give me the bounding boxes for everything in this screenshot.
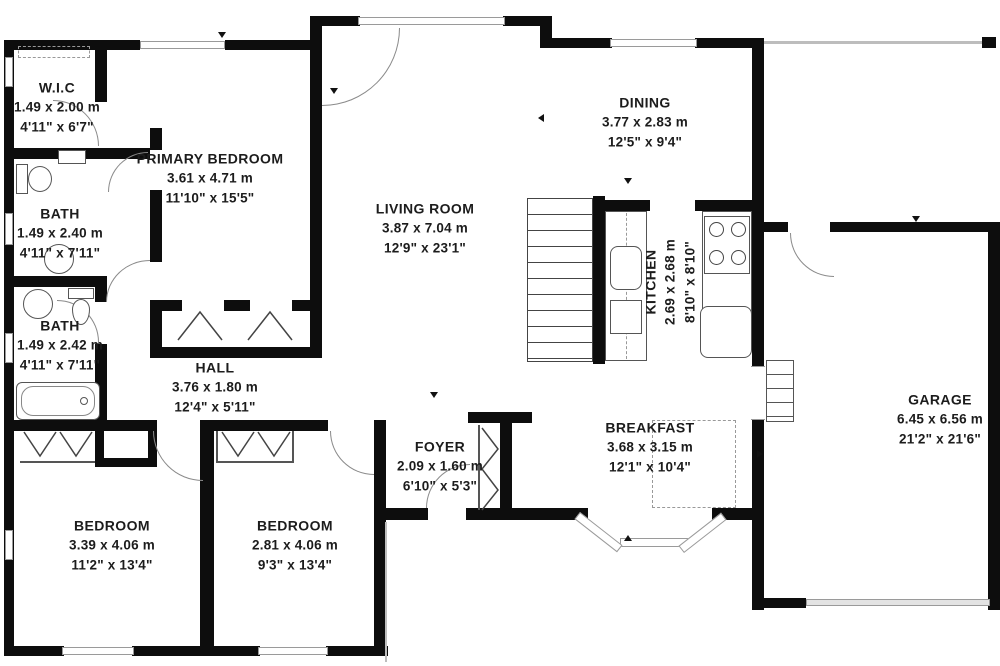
fence-post [982, 37, 996, 48]
door-tick [218, 32, 226, 42]
wall-segment [224, 300, 250, 311]
door-tick [624, 531, 632, 541]
wall-segment [225, 40, 320, 50]
wall-segment [4, 646, 64, 656]
room-name: BREAKFAST [605, 417, 694, 437]
room-label-living-room: LIVING ROOM 3.87 x 7.04 m 12'9" x 23'1" [376, 198, 475, 257]
window [140, 41, 225, 49]
floor-plan: W.I.C 1.49 x 2.00 m 4'11" x 6'7" PRIMARY… [0, 0, 1000, 666]
room-imperial: 11'2" x 13'4" [69, 555, 155, 575]
wall-segment [500, 412, 512, 512]
stove-burner [709, 250, 724, 265]
wall-segment [150, 128, 162, 150]
window [5, 333, 13, 363]
wall-segment [132, 646, 260, 656]
wall-segment [988, 222, 1000, 610]
door-tick [430, 392, 438, 402]
bifold-door [480, 428, 500, 510]
window [258, 647, 328, 655]
room-name: BATH [17, 203, 103, 223]
wall-segment [310, 16, 322, 306]
wall-segment [695, 200, 752, 211]
closet-chevron [248, 310, 292, 342]
room-metric: 3.77 x 2.83 m [602, 113, 688, 133]
door-arc [330, 431, 374, 475]
room-imperial: 8'10" x 8'10" [680, 239, 700, 325]
toilet [28, 166, 52, 192]
window [5, 57, 13, 87]
closet-front [216, 461, 294, 463]
room-metric: 2.81 x 4.06 m [252, 536, 338, 556]
room-imperial: 12'4" x 5'11" [172, 397, 258, 417]
wall-segment [540, 38, 612, 48]
room-label-bedroom-2: BEDROOM 2.81 x 4.06 m 9'3" x 13'4" [252, 515, 338, 574]
door-tick [912, 216, 920, 226]
stove-burner [709, 222, 724, 237]
wall-segment [292, 300, 310, 311]
room-name: KITCHEN [640, 239, 660, 325]
wall-segment [752, 598, 806, 608]
fence-line [764, 41, 984, 44]
room-name: GARAGE [897, 389, 983, 409]
wall-segment [374, 508, 428, 520]
closet-side [292, 431, 294, 462]
door-opening [788, 221, 830, 233]
room-metric: 1.49 x 2.42 m [17, 336, 103, 356]
room-label-foyer: FOYER 2.09 x 1.60 m 6'10" x 5'3" [397, 436, 483, 495]
room-metric: 2.09 x 1.60 m [397, 457, 483, 477]
wall-segment [593, 196, 605, 364]
room-metric: 6.45 x 6.56 m [897, 410, 983, 430]
room-imperial: 4'11" x 7'11" [17, 243, 103, 263]
toilet [68, 288, 94, 299]
room-imperial: 12'5" x 9'4" [602, 132, 688, 152]
wall-segment [4, 276, 107, 287]
room-name: PRIMARY BEDROOM [137, 148, 284, 168]
room-label-bedroom-1: BEDROOM 3.39 x 4.06 m 11'2" x 13'4" [69, 515, 155, 574]
room-metric: 3.61 x 4.71 m [137, 169, 284, 189]
porch-line [385, 522, 387, 662]
room-imperial: 6'10" x 5'3" [397, 476, 483, 496]
room-name: BEDROOM [252, 515, 338, 535]
room-imperial: 9'3" x 13'4" [252, 555, 338, 575]
room-imperial: 12'1" x 10'4" [605, 457, 694, 477]
room-imperial: 4'11" x 6'7" [14, 117, 100, 137]
room-imperial: 21'2" x 21'6" [897, 429, 983, 449]
room-metric: 2.69 x 2.68 m [661, 239, 681, 325]
window [5, 213, 13, 245]
room-metric: 3.39 x 4.06 m [69, 536, 155, 556]
room-name: FOYER [397, 436, 483, 456]
room-metric: 3.87 x 7.04 m [376, 219, 475, 239]
fridge [700, 306, 752, 358]
bay-window [574, 512, 622, 552]
room-name: DINING [602, 92, 688, 112]
room-imperial: 4'11" x 7'11" [17, 355, 103, 375]
closet-side [216, 431, 218, 462]
room-label-dining: DINING 3.77 x 2.83 m 12'5" x 9'4" [602, 92, 688, 151]
room-label-kitchen: KITCHEN 2.69 x 2.68 m 8'10" x 8'10" [640, 239, 699, 325]
room-label-hall: HALL 3.76 x 1.80 m 12'4" x 5'11" [172, 357, 258, 416]
room-imperial: 12'9" x 23'1" [376, 238, 475, 258]
garage-door-arc [790, 233, 834, 277]
closet-chevron [222, 432, 254, 458]
room-label-breakfast: BREAKFAST 3.68 x 3.15 m 12'1" x 10'4" [605, 417, 694, 476]
door-arc [106, 260, 150, 302]
stove-burner [731, 250, 746, 265]
wic-shelf [18, 46, 90, 58]
room-label-bath-2: BATH 1.49 x 2.42 m 4'11" x 7'11" [17, 315, 103, 374]
vanity-sink [58, 150, 86, 164]
door-tick [624, 178, 632, 188]
room-metric: 1.49 x 2.40 m [17, 224, 103, 244]
tub-drain [80, 397, 88, 405]
garage-door [806, 599, 990, 606]
room-metric: 3.76 x 1.80 m [172, 378, 258, 398]
stove-burner [731, 222, 746, 237]
window [62, 647, 134, 655]
wall-segment [205, 420, 328, 431]
window [5, 530, 13, 560]
door-tick [534, 114, 544, 122]
room-metric: 3.68 x 3.15 m [605, 438, 694, 458]
toilet [16, 164, 28, 194]
room-label-wic: W.I.C 1.49 x 2.00 m 4'11" x 6'7" [14, 77, 100, 136]
wall-segment [4, 420, 155, 431]
stairs [527, 198, 593, 362]
room-name: LIVING ROOM [376, 198, 475, 218]
door-tick [757, 450, 767, 458]
dishwasher [610, 300, 642, 334]
door-arc [153, 431, 203, 481]
door-opening [751, 366, 765, 420]
room-metric: 1.49 x 2.00 m [14, 98, 100, 118]
linen-closet-wall [95, 458, 157, 467]
room-name: W.I.C [14, 77, 100, 97]
door-tick [330, 88, 338, 98]
kitchen-sink [610, 246, 642, 290]
window [610, 39, 697, 47]
room-name: HALL [172, 357, 258, 377]
closet-chevron [258, 432, 290, 458]
wall-segment [605, 200, 650, 211]
room-label-bath-1: BATH 1.49 x 2.40 m 4'11" x 7'11" [17, 203, 103, 262]
bay-window [678, 513, 726, 553]
wall-segment [752, 38, 764, 610]
room-label-garage: GARAGE 6.45 x 6.56 m 21'2" x 21'6" [897, 389, 983, 448]
closet-front [20, 461, 95, 463]
room-name: BEDROOM [69, 515, 155, 535]
garage-steps [766, 360, 794, 422]
room-label-primary-bedroom: PRIMARY BEDROOM 3.61 x 4.71 m 11'10" x 1… [137, 148, 284, 207]
closet-chevron [60, 432, 92, 458]
window [358, 17, 505, 25]
room-name: BATH [17, 315, 103, 335]
closet-chevron [178, 310, 222, 342]
room-imperial: 11'10" x 15'5" [137, 188, 284, 208]
closet-chevron [24, 432, 56, 458]
